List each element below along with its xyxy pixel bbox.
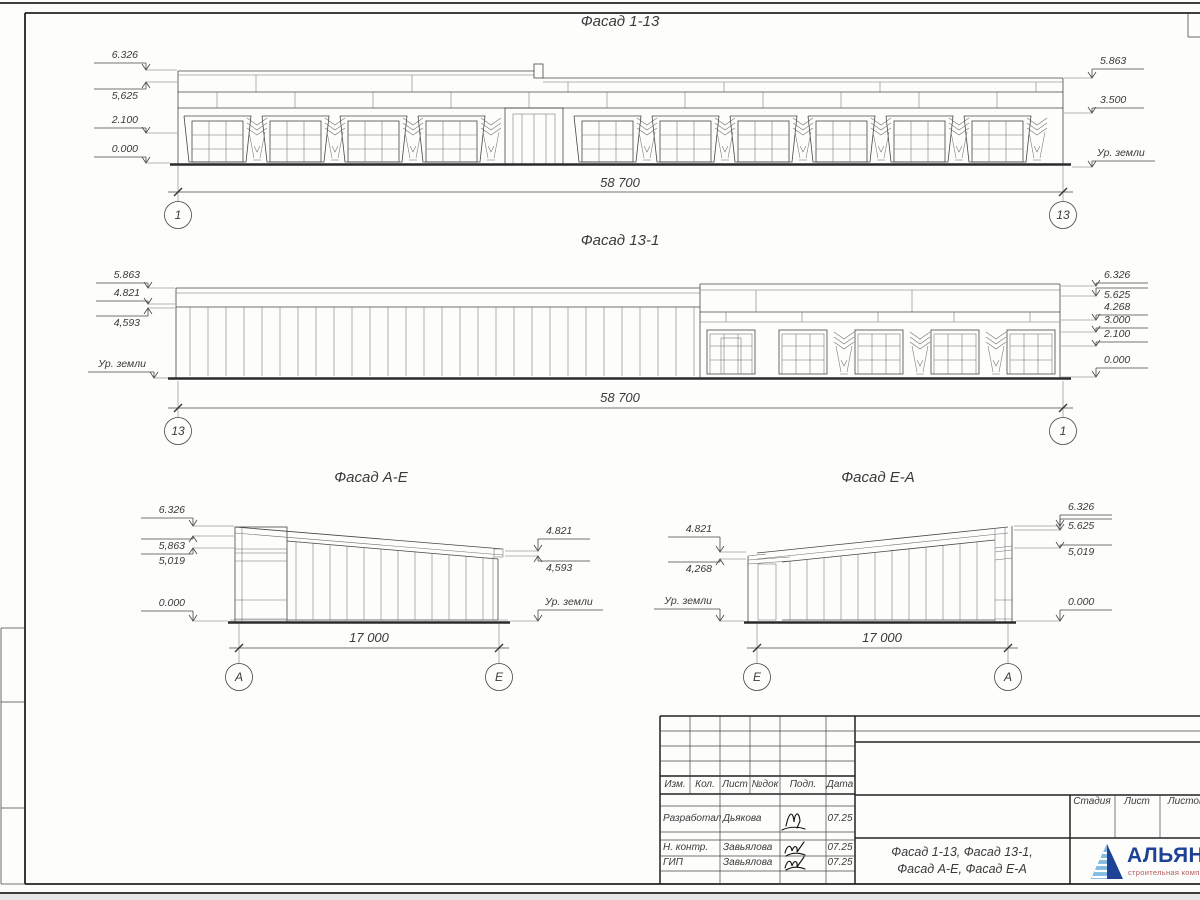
axis-label: А xyxy=(1004,671,1012,683)
tb-role: Н. контр. xyxy=(663,843,708,853)
level-label: 4,593 xyxy=(546,563,572,574)
tb-name: Дьякова xyxy=(723,814,762,824)
level-label: 5.863 xyxy=(114,270,140,281)
dimension-label-f131: 58 700 xyxy=(600,391,640,404)
level-label: 4.268 xyxy=(1104,302,1130,313)
level-label: 5.625 xyxy=(1104,290,1130,301)
tb-col-header: Изм. xyxy=(664,780,685,790)
tb-name: Завьялова xyxy=(723,843,772,853)
tb-date: 07.25 xyxy=(827,814,852,824)
elevation-title-fae: Фасад А-Е xyxy=(334,470,408,485)
axis-label: 13 xyxy=(171,425,184,437)
drawing-linework xyxy=(0,0,1200,900)
sheet-edge xyxy=(0,894,1200,900)
axis-label: 1 xyxy=(175,209,182,221)
level-label: 6.326 xyxy=(112,50,138,61)
level-label: 0.000 xyxy=(112,144,138,155)
level-label: Ур. земли xyxy=(98,359,146,370)
level-label: 6.326 xyxy=(1068,502,1094,513)
axis-label: Е xyxy=(495,671,503,683)
tb-role: Разработал xyxy=(663,814,721,824)
level-label: 2.100 xyxy=(1104,329,1130,340)
level-label: 5,019 xyxy=(1068,547,1094,558)
level-label: 4,593 xyxy=(114,318,140,329)
elevation-title-f131: Фасад 13-1 xyxy=(581,233,660,248)
axis-label: 1 xyxy=(1060,425,1067,437)
drawing-sheet: Фасад 1-13 Фасад 13-1 Фасад А-Е Фасад Е-… xyxy=(0,0,1200,900)
level-label: 3.000 xyxy=(1104,315,1130,326)
dimension-label-f113: 58 700 xyxy=(600,176,640,189)
tb-col-header: Подп. xyxy=(790,780,817,790)
tb-date: 07.25 xyxy=(827,858,852,868)
level-label: Ур. земли xyxy=(1097,148,1145,159)
tb-role: ГИП xyxy=(663,858,683,868)
tb-col-header: №док xyxy=(752,780,779,790)
logo-text: АЛЬЯНС xyxy=(1127,845,1200,866)
level-label: 0.000 xyxy=(159,598,185,609)
level-label: 0.000 xyxy=(1068,597,1094,608)
level-label: 5,863 xyxy=(159,541,185,552)
level-label: 4.821 xyxy=(686,524,712,535)
tb-col-header: Лист xyxy=(722,780,748,790)
level-label: 3.500 xyxy=(1100,95,1126,106)
level-label: 4.821 xyxy=(546,526,572,537)
stage-col-header: Листов xyxy=(1168,797,1200,807)
logo-subtitle: строительная компания xyxy=(1128,869,1200,877)
axis-label: Е xyxy=(753,671,761,683)
dimension-label-fae: 17 000 xyxy=(349,631,389,644)
stage-col-header: Лист xyxy=(1124,797,1150,807)
level-label: 6.326 xyxy=(159,505,185,516)
tb-name: Завьялова xyxy=(723,858,772,868)
level-label: 5.625 xyxy=(1068,521,1094,532)
level-label: 0.000 xyxy=(1104,355,1130,366)
level-label: 4,268 xyxy=(686,564,712,575)
tb-col-header: Дата xyxy=(827,780,853,790)
level-label: 4.821 xyxy=(114,288,140,299)
stage-col-header: Стадия xyxy=(1073,797,1110,807)
axis-label: А xyxy=(235,671,243,683)
elevation-title-fea: Фасад Е-А xyxy=(841,470,915,485)
level-label: 5.863 xyxy=(1100,56,1126,67)
elevation-title-f113: Фасад 1-13 xyxy=(581,14,660,29)
dimension-label-fea: 17 000 xyxy=(862,631,902,644)
axis-label: 13 xyxy=(1056,209,1069,221)
level-label: 5,019 xyxy=(159,556,185,567)
tb-date: 07.25 xyxy=(827,843,852,853)
doc-title-line: Фасад А-Е, Фасад Е-А xyxy=(897,863,1027,876)
level-label: 2.100 xyxy=(112,115,138,126)
logo-pyramid-icon xyxy=(1090,843,1124,880)
level-label: 5,625 xyxy=(112,91,138,102)
level-label: Ур. земли xyxy=(664,596,712,607)
tb-col-header: Кол. xyxy=(695,780,715,790)
level-label: 6.326 xyxy=(1104,270,1130,281)
level-label: Ур. земли xyxy=(545,597,593,608)
doc-title-line: Фасад 1-13, Фасад 13-1, xyxy=(891,846,1032,859)
